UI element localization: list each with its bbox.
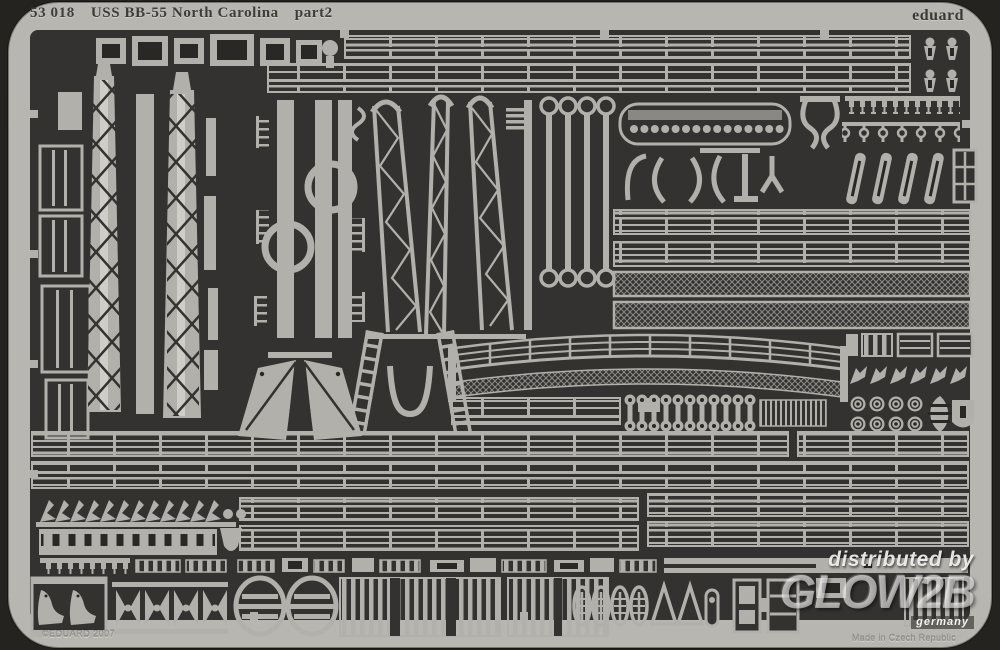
railing-strip-right-1	[614, 210, 970, 234]
photo-etch-fret-photo: 53 018USS BB-55 North Carolinapart2 edua…	[0, 0, 1000, 650]
etched-sheet-graphic	[0, 0, 1000, 650]
railing-strip-top-1	[345, 36, 910, 58]
mesh-band-2	[614, 302, 970, 328]
fret-header-text: 53 018USS BB-55 North Carolinapart2	[30, 5, 349, 22]
railing-strip-wide-2	[32, 462, 968, 488]
fine-comb-strip	[760, 400, 826, 426]
railing-strip-mid	[452, 398, 620, 424]
railing-strip-wide-1b	[798, 432, 968, 456]
railing-strip-low-2	[240, 526, 638, 550]
catalog-number: 53 018	[30, 5, 75, 21]
railing-strip-low-3	[648, 494, 968, 516]
copyright-emboss: ©EDUARD 2007	[42, 629, 115, 639]
railing-strip-top-2	[268, 64, 910, 92]
railing-strip-wide-1	[32, 432, 788, 456]
railing-strip-low-1	[240, 498, 638, 520]
chain-link-row	[625, 395, 756, 432]
fret-title: USS BB-55 North Carolina	[91, 5, 279, 21]
mesh-band-1	[614, 272, 970, 296]
holed-strip-part	[40, 528, 242, 554]
made-in-emboss: Made in Czech Republic	[852, 633, 956, 643]
part-label: part2	[295, 5, 333, 21]
railing-strip-right-2	[614, 242, 970, 266]
capsule-part	[706, 590, 718, 626]
railing-strip-low-4	[648, 522, 968, 546]
vent-grille-parts	[340, 578, 608, 636]
brand-logo: eduard	[912, 7, 964, 25]
